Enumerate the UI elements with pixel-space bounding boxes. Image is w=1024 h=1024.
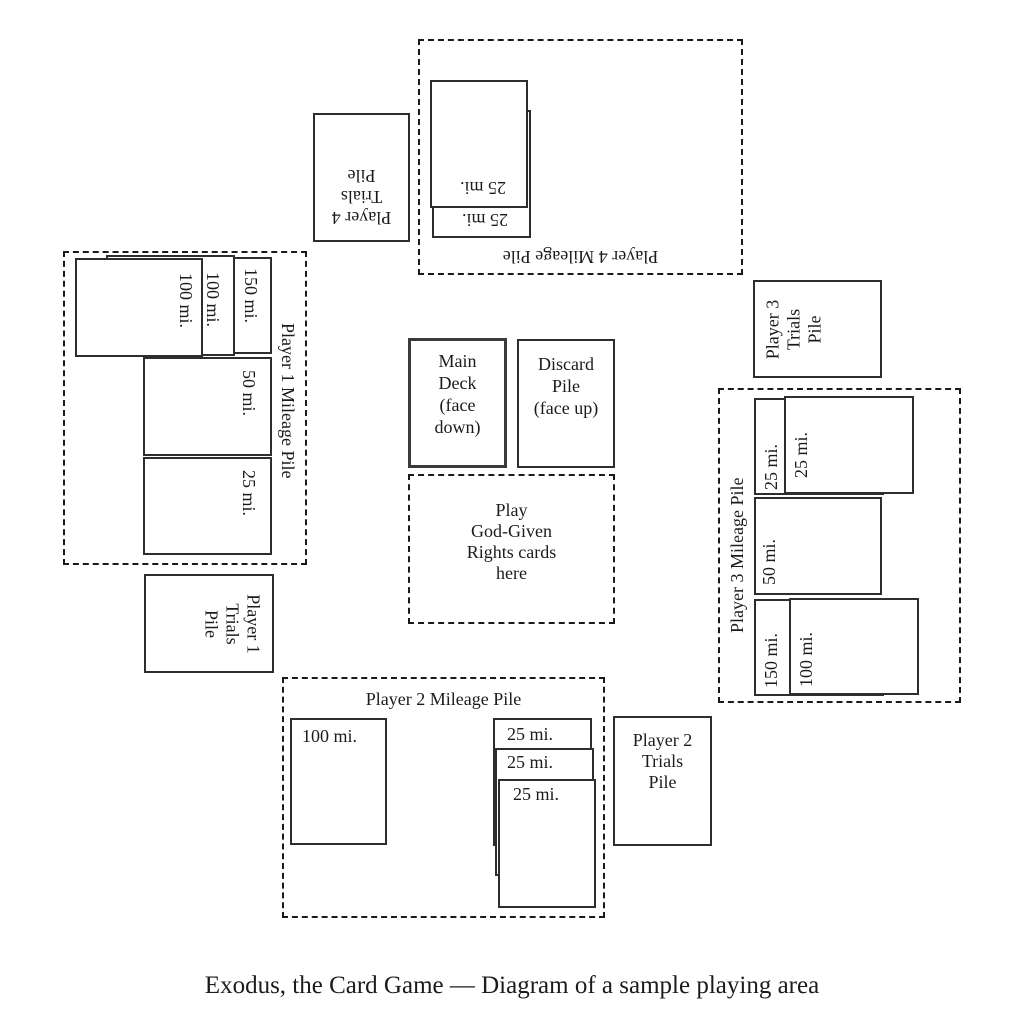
mileage-card-label: 25 mi. xyxy=(507,753,553,772)
mileage-card-label: 50 mi. xyxy=(760,539,778,585)
mileage-card: 50 mi. xyxy=(143,357,272,456)
trials-pile-label: Player 2 Trials Pile xyxy=(615,718,710,844)
trials-pile-label-line: Trials xyxy=(615,751,710,772)
mileage-card-label: 25 mi. xyxy=(513,785,559,804)
discard-pile-label: Discard Pile (face up) xyxy=(519,341,613,466)
player2-mileage-zone-label: Player 2 Mileage Pile xyxy=(284,689,603,709)
mileage-card-label: 25 mi. xyxy=(792,432,810,478)
discard-pile-label-line: Discard xyxy=(519,353,613,375)
player2-mileage-zone: Player 2 Mileage Pile 100 mi. 25 mi. 25 … xyxy=(282,677,605,918)
trials-pile-label-line: Player 4 xyxy=(315,207,408,228)
player3-trials-pile: Player 3 Trials Pile xyxy=(753,280,882,378)
mileage-card-label: 25 mi. xyxy=(240,470,258,516)
mileage-card: 25 mi. xyxy=(143,457,272,555)
trials-pile-label: Player 4 Trials Pile xyxy=(315,115,408,240)
mileage-card: 25 mi. xyxy=(784,396,914,494)
mileage-card-label: 100 mi. xyxy=(204,272,222,327)
player4-mileage-zone-label: Player 4 Mileage Pile xyxy=(420,247,741,267)
mileage-card: 100 mi. xyxy=(789,598,919,695)
play-area-label: Play God-Given Rights cards here xyxy=(410,476,613,622)
trials-pile-label-line: Pile xyxy=(805,281,826,379)
mileage-card-label: 150 mi. xyxy=(242,268,260,323)
discard-pile-label-line: (face up) xyxy=(519,397,613,419)
mileage-card-label: 25 mi. xyxy=(462,210,508,229)
main-deck-label-line: (face xyxy=(411,394,504,416)
trials-pile-label-line: Trials xyxy=(222,575,243,674)
trials-pile-label-line: Pile xyxy=(201,575,222,674)
main-deck-label: Main Deck (face down) xyxy=(411,341,504,465)
mileage-card: 25 mi. xyxy=(430,80,528,208)
mileage-card-label: 25 mi. xyxy=(507,725,553,744)
mileage-card: 100 mi. xyxy=(290,718,387,845)
mileage-card: 100 mi. xyxy=(75,258,203,357)
mileage-card-label: 100 mi. xyxy=(797,632,815,687)
mileage-card-label: 25 mi. xyxy=(460,178,506,197)
trials-pile-label-line: Player 1 xyxy=(243,575,264,674)
play-area-label-line: Rights cards xyxy=(410,542,613,563)
main-deck-label-line: down) xyxy=(411,416,504,438)
play-area-label-line: here xyxy=(410,563,613,584)
discard-pile-card: Discard Pile (face up) xyxy=(517,339,615,468)
play-area-label-line: Play xyxy=(410,500,613,521)
diagram-caption: Exodus, the Card Game — Diagram of a sam… xyxy=(0,971,1024,1001)
trials-pile-label: Player 3 Trials Pile xyxy=(753,281,882,379)
discard-pile-label-line: Pile xyxy=(519,375,613,397)
mileage-card-label: 25 mi. xyxy=(762,444,780,490)
mileage-card: 25 mi. xyxy=(498,779,596,908)
trials-pile-label-line: Trials xyxy=(315,186,408,207)
player1-trials-pile: Player 1 Trials Pile xyxy=(144,574,274,673)
mileage-card: 50 mi. xyxy=(754,497,882,595)
trials-pile-label-line: Trials xyxy=(784,281,805,379)
player4-mileage-zone: 25 mi. 25 mi. Player 4 Mileage Pile xyxy=(418,39,743,275)
play-area-label-line: God-Given xyxy=(410,521,613,542)
main-deck-card: Main Deck (face down) xyxy=(408,338,507,468)
playing-area-diagram: 25 mi. 25 mi. Player 4 Mileage Pile Play… xyxy=(0,0,1024,1024)
main-deck-label-line: Deck xyxy=(411,372,504,394)
trials-pile-label-line: Pile xyxy=(315,165,408,186)
mileage-card-label: 50 mi. xyxy=(240,370,258,416)
player3-mileage-zone-label: Player 3 Mileage Pile xyxy=(728,478,746,633)
player4-trials-pile: Player 4 Trials Pile xyxy=(313,113,410,242)
trials-pile-label-line: Player 3 xyxy=(763,281,784,379)
mileage-card-label: 100 mi. xyxy=(302,727,357,746)
trials-pile-label: Player 1 Trials Pile xyxy=(144,575,274,674)
player3-mileage-zone: 25 mi. 25 mi. 50 mi. 150 mi. 100 mi. Pla… xyxy=(718,388,961,703)
trials-pile-label-line: Player 2 xyxy=(615,730,710,751)
main-deck-label-line: Main xyxy=(411,350,504,372)
player2-trials-pile: Player 2 Trials Pile xyxy=(613,716,712,846)
mileage-card-label: 100 mi. xyxy=(177,273,195,328)
god-given-rights-play-area: Play God-Given Rights cards here xyxy=(408,474,615,624)
mileage-card-label: 150 mi. xyxy=(762,633,780,688)
player1-mileage-zone: 150 mi. 100 mi. 100 mi. 50 mi. 25 mi. Pl… xyxy=(63,251,307,565)
player1-mileage-zone-label: Player 1 Mileage Pile xyxy=(279,323,297,478)
trials-pile-label-line: Pile xyxy=(615,772,710,793)
